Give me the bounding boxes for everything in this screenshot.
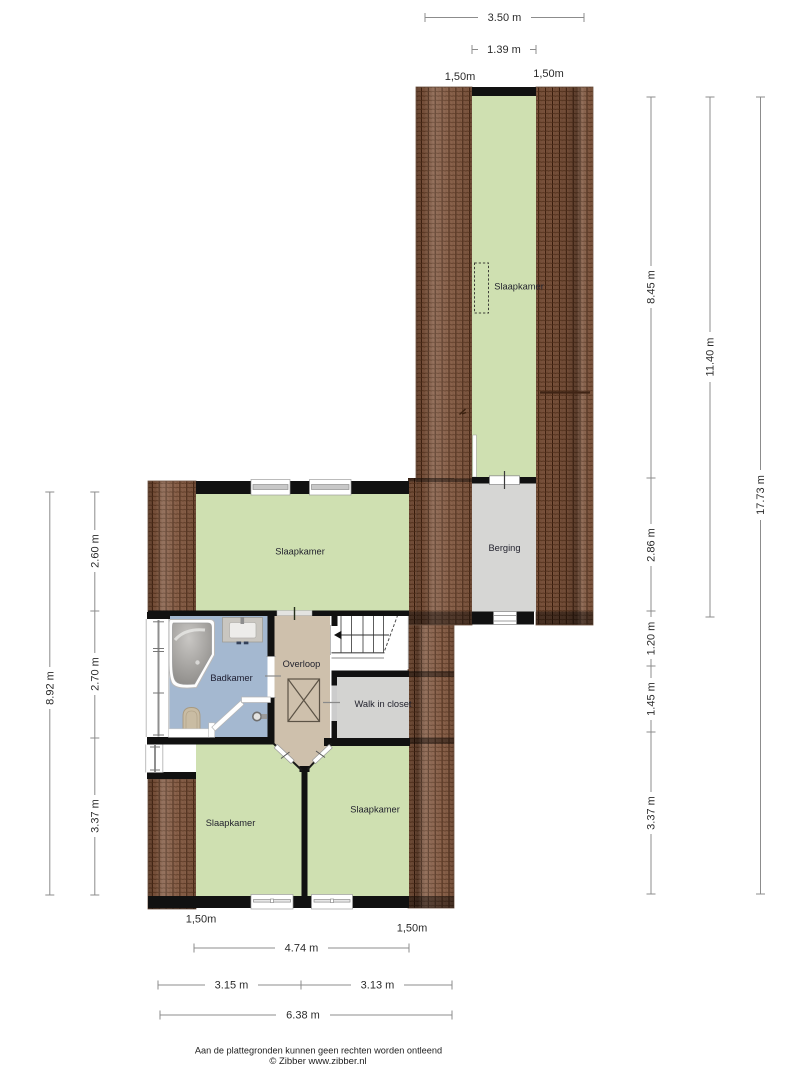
svg-text:© Zibber www.zibber.nl: © Zibber www.zibber.nl <box>269 1056 366 1067</box>
svg-text:Aan de plattegronden kunnen ge: Aan de plattegronden kunnen geen rechten… <box>195 1046 442 1056</box>
svg-text:1.20 m: 1.20 m <box>646 622 658 656</box>
svg-text:8.92 m: 8.92 m <box>44 671 56 705</box>
svg-text:1.39 m: 1.39 m <box>487 44 521 56</box>
svg-text:8.45 m: 8.45 m <box>646 270 658 304</box>
svg-text:1,50m: 1,50m <box>397 923 428 935</box>
svg-text:2.60 m: 2.60 m <box>89 534 101 568</box>
svg-text:1,50m: 1,50m <box>445 71 476 83</box>
svg-text:3.37 m: 3.37 m <box>646 796 658 830</box>
svg-text:2.86 m: 2.86 m <box>646 528 658 562</box>
svg-text:Slaapkamer: Slaapkamer <box>350 805 400 815</box>
svg-text:6.38 m: 6.38 m <box>286 1010 320 1022</box>
svg-text:Badkamer: Badkamer <box>210 673 252 683</box>
svg-text:Slaapkamer: Slaapkamer <box>275 547 325 557</box>
svg-text:3.37 m: 3.37 m <box>89 799 101 833</box>
svg-text:1,50m: 1,50m <box>186 914 217 926</box>
svg-text:1,50m: 1,50m <box>533 68 564 80</box>
svg-text:Slaapkamer: Slaapkamer <box>206 818 256 828</box>
svg-text:1.45 m: 1.45 m <box>646 682 658 716</box>
svg-text:3.50 m: 3.50 m <box>488 12 522 24</box>
svg-text:17.73 m: 17.73 m <box>755 475 767 515</box>
svg-text:11.40 m: 11.40 m <box>705 338 717 377</box>
svg-text:Overloop: Overloop <box>283 659 321 669</box>
svg-text:3.13 m: 3.13 m <box>361 980 395 992</box>
svg-text:Berging: Berging <box>488 543 520 553</box>
svg-text:3.15 m: 3.15 m <box>215 980 249 992</box>
svg-text:Walk in closet: Walk in closet <box>354 699 411 709</box>
svg-text:2.70 m: 2.70 m <box>89 657 101 691</box>
svg-text:Slaapkamer: Slaapkamer <box>494 282 544 292</box>
svg-text:4.74 m: 4.74 m <box>285 943 319 955</box>
